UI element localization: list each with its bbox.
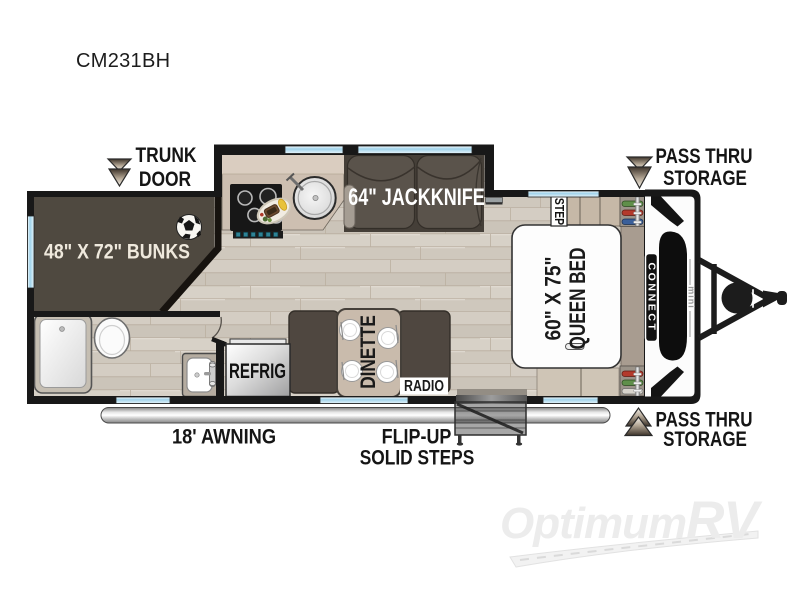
svg-text:OptimumRV: OptimumRV	[500, 491, 763, 550]
svg-text:TRUNK: TRUNK	[136, 145, 197, 168]
svg-text:CM231BH: CM231BH	[76, 50, 170, 72]
svg-text:SOLID STEPS: SOLID STEPS	[360, 447, 475, 470]
svg-text:60" X 75": 60" X 75"	[541, 256, 566, 340]
svg-text:mini: mini	[687, 286, 697, 309]
svg-text:DOOR: DOOR	[139, 169, 191, 192]
svg-text:DINETTE: DINETTE	[358, 315, 381, 389]
svg-text:18' AWNING: 18' AWNING	[172, 425, 276, 448]
svg-text:FLIP-UP: FLIP-UP	[382, 425, 452, 449]
svg-text:CONNECT: CONNECT	[645, 262, 657, 332]
svg-text:STORAGE: STORAGE	[663, 167, 747, 190]
svg-text:STEP: STEP	[551, 198, 565, 225]
svg-text:PASS THRU: PASS THRU	[656, 145, 753, 168]
svg-text:REFRIG: REFRIG	[229, 358, 286, 382]
svg-text:48" X 72" BUNKS: 48" X 72" BUNKS	[44, 240, 190, 264]
svg-text:RADIO: RADIO	[404, 377, 444, 395]
svg-text:QUEEN BED: QUEEN BED	[566, 248, 591, 350]
svg-text:64" JACKKNIFE: 64" JACKKNIFE	[348, 185, 485, 211]
svg-text:STORAGE: STORAGE	[663, 428, 747, 451]
